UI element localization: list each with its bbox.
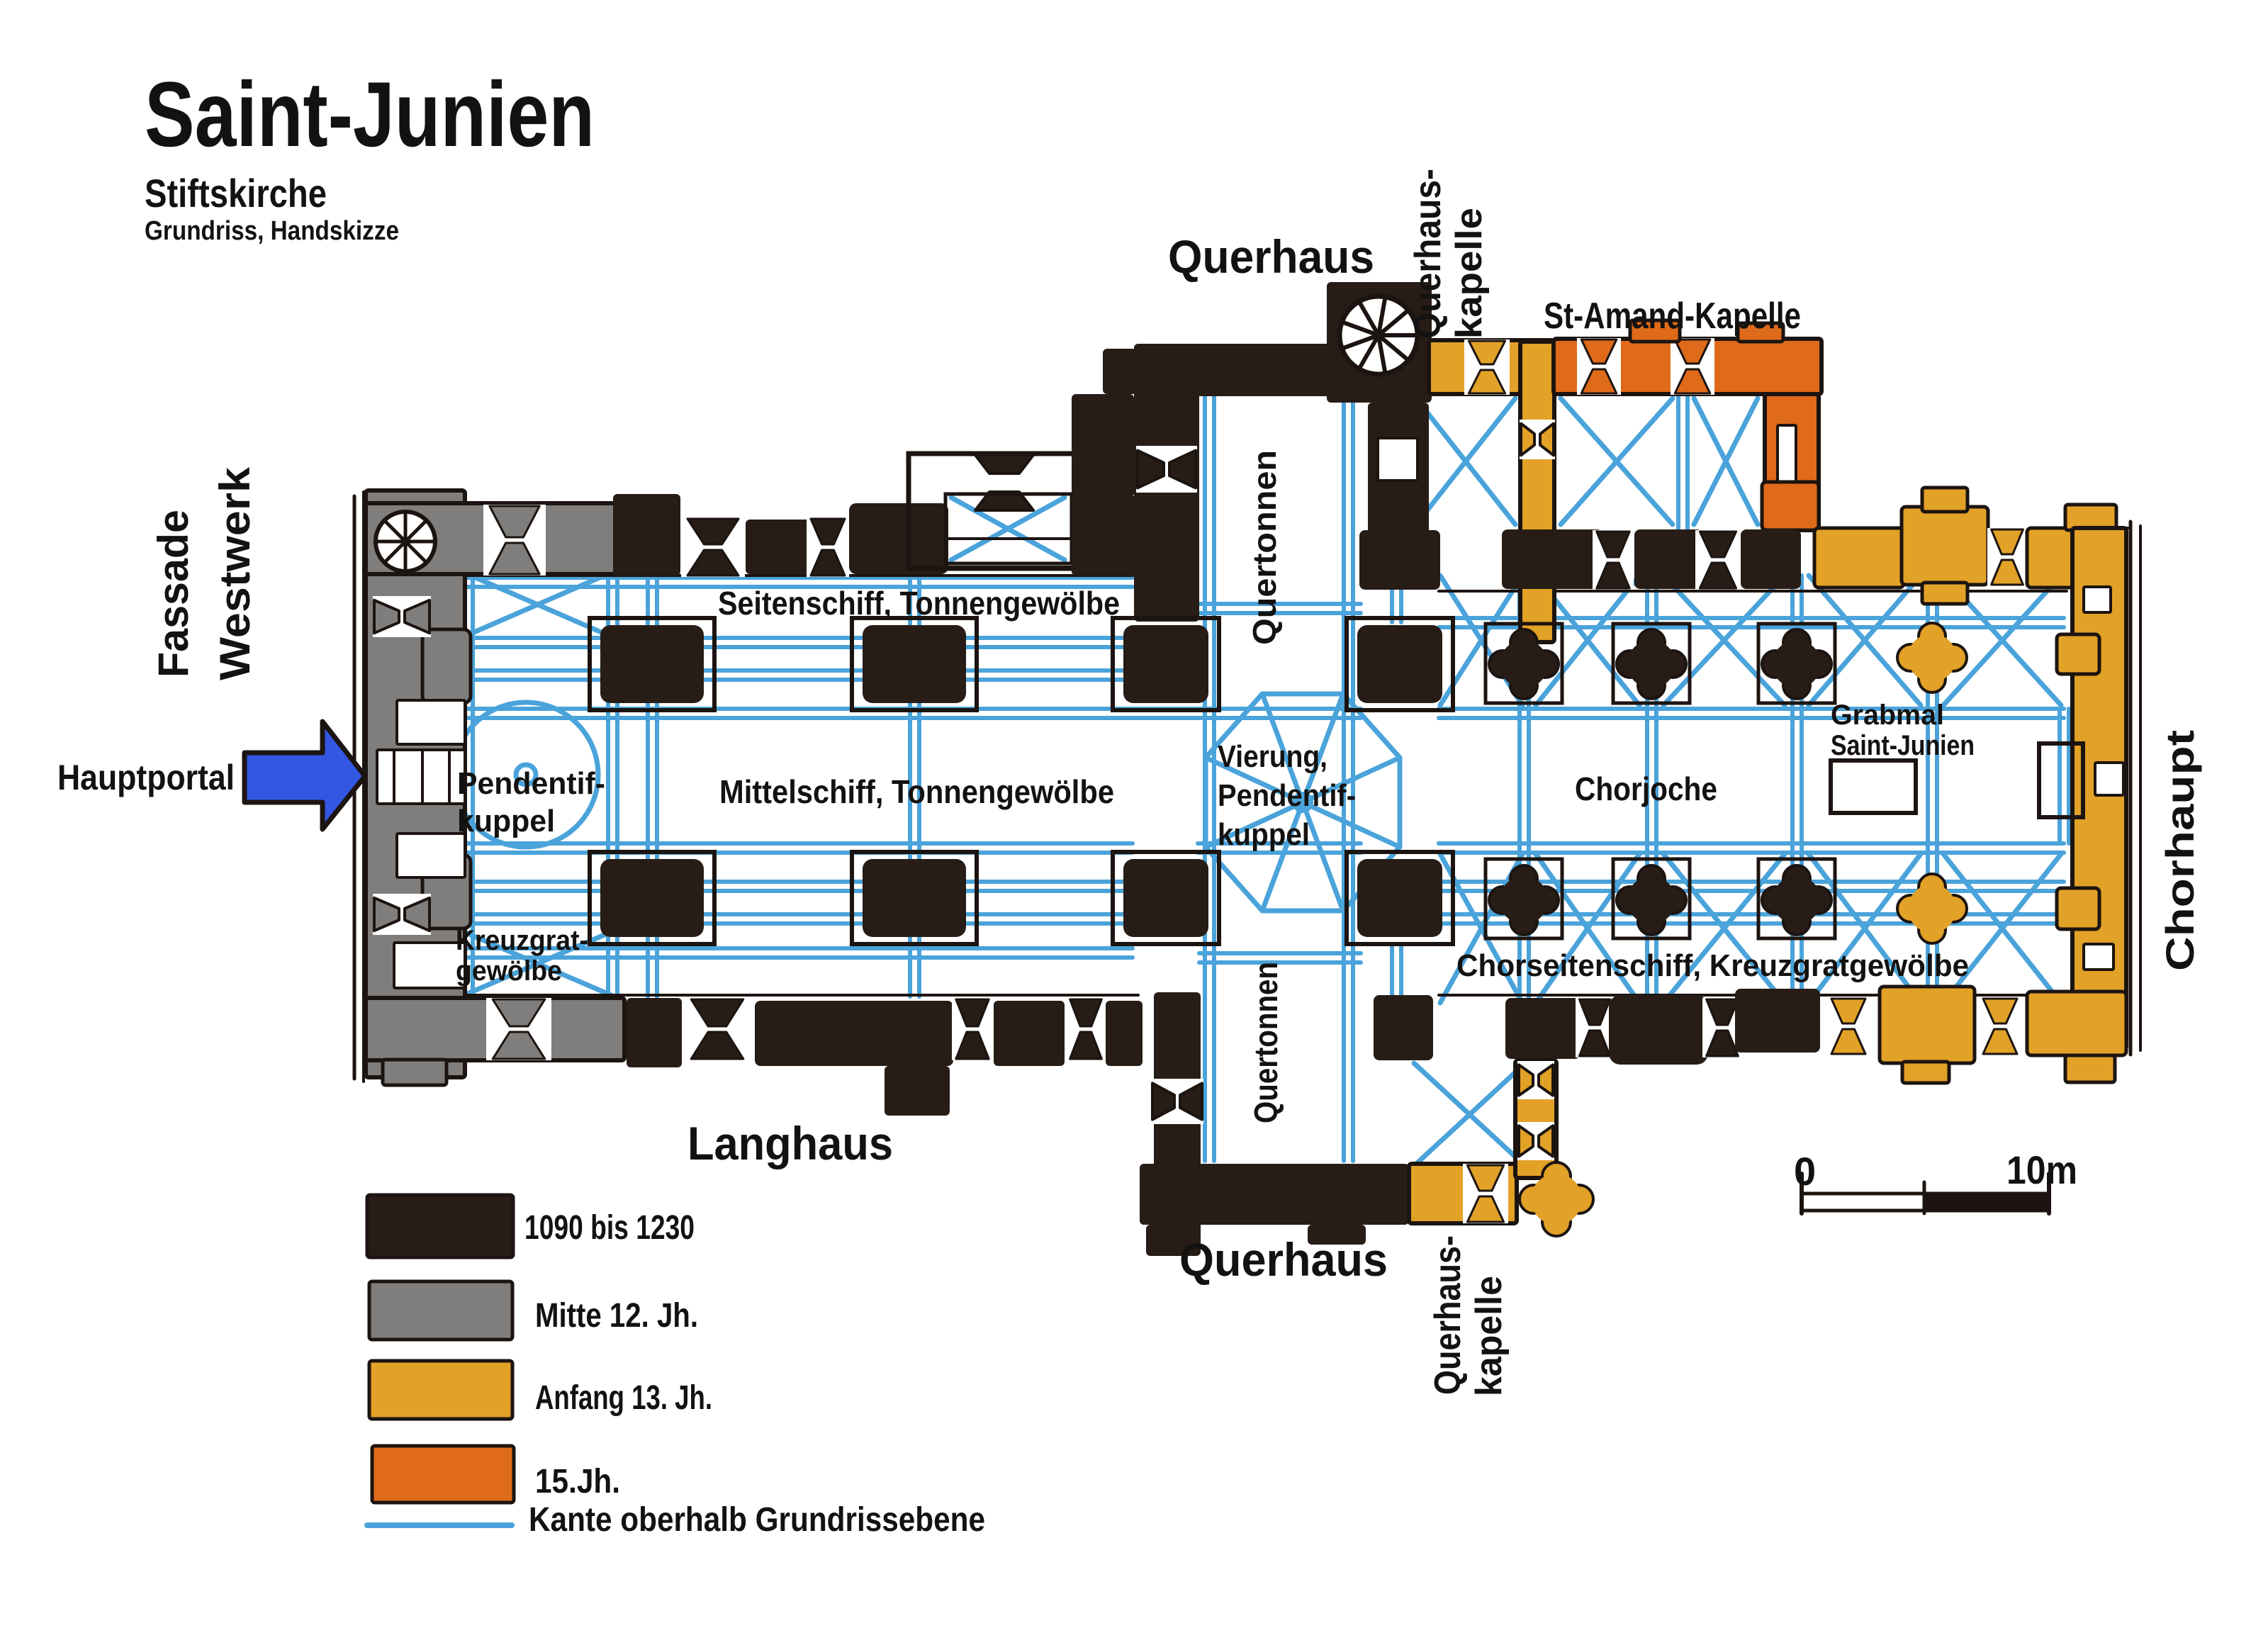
svg-text:Stiftskirche: Stiftskirche (145, 171, 327, 215)
svg-text:Westwerk: Westwerk (211, 466, 259, 680)
svg-text:Saint-Junien: Saint-Junien (145, 62, 595, 166)
svg-text:Seitenschiff, Tonnengewölbe: Seitenschiff, Tonnengewölbe (718, 585, 1120, 622)
svg-text:Querhaus: Querhaus (1168, 230, 1374, 283)
svg-text:kapelle: kapelle (1469, 1276, 1510, 1396)
svg-text:kapelle: kapelle (1449, 208, 1490, 339)
svg-text:gewölbe: gewölbe (456, 955, 562, 987)
svg-text:Querhaus: Querhaus (1179, 1233, 1388, 1286)
svg-text:0: 0 (1794, 1149, 1816, 1194)
svg-text:Quertonnen: Quertonnen (1247, 962, 1284, 1123)
svg-text:15.Jh.: 15.Jh. (535, 1463, 620, 1500)
svg-text:Langhaus: Langhaus (687, 1117, 893, 1169)
svg-text:Grabmal: Grabmal (1831, 700, 1944, 731)
svg-text:Kante oberhalb Grundrissebene: Kante oberhalb Grundrissebene (529, 1501, 985, 1539)
svg-text:Pendentif-: Pendentif- (1218, 778, 1356, 813)
svg-text:Chorseitenschiff, Kreuzgratgew: Chorseitenschiff, Kreuzgratgewölbe (1456, 948, 1969, 983)
svg-text:Saint-Junien: Saint-Junien (1831, 730, 1975, 761)
svg-text:kuppel: kuppel (1218, 817, 1310, 852)
svg-text:Quertonnen: Quertonnen (1246, 450, 1283, 645)
svg-text:Mittelschiff, Tonnengewölbe: Mittelschiff, Tonnengewölbe (719, 773, 1114, 810)
svg-text:kuppel: kuppel (457, 804, 555, 838)
svg-text:10m: 10m (2006, 1147, 2077, 1192)
svg-text:St-Amand-Kapelle: St-Amand-Kapelle (1544, 296, 1801, 337)
svg-text:Hauptportal: Hauptportal (57, 758, 235, 797)
svg-text:Vierung,: Vierung, (1218, 739, 1327, 774)
svg-text:Pendentif-: Pendentif- (457, 766, 605, 801)
svg-text:Querhaus-: Querhaus- (1427, 1235, 1469, 1395)
svg-text:Querhaus-: Querhaus- (1408, 169, 1449, 339)
svg-text:Kreuzgrat-: Kreuzgrat- (456, 925, 588, 956)
svg-text:Anfang 13. Jh.: Anfang 13. Jh. (535, 1379, 712, 1417)
svg-text:Grundriss, Handskizze: Grundriss, Handskizze (145, 216, 399, 246)
svg-text:1090 bis 1230: 1090 bis 1230 (524, 1209, 695, 1247)
svg-text:Chorjoche: Chorjoche (1575, 770, 1717, 807)
svg-text:Chorhaupt: Chorhaupt (2157, 730, 2202, 971)
svg-text:Mitte 12. Jh.: Mitte 12. Jh. (535, 1297, 698, 1335)
svg-text:Fassade: Fassade (150, 510, 197, 678)
